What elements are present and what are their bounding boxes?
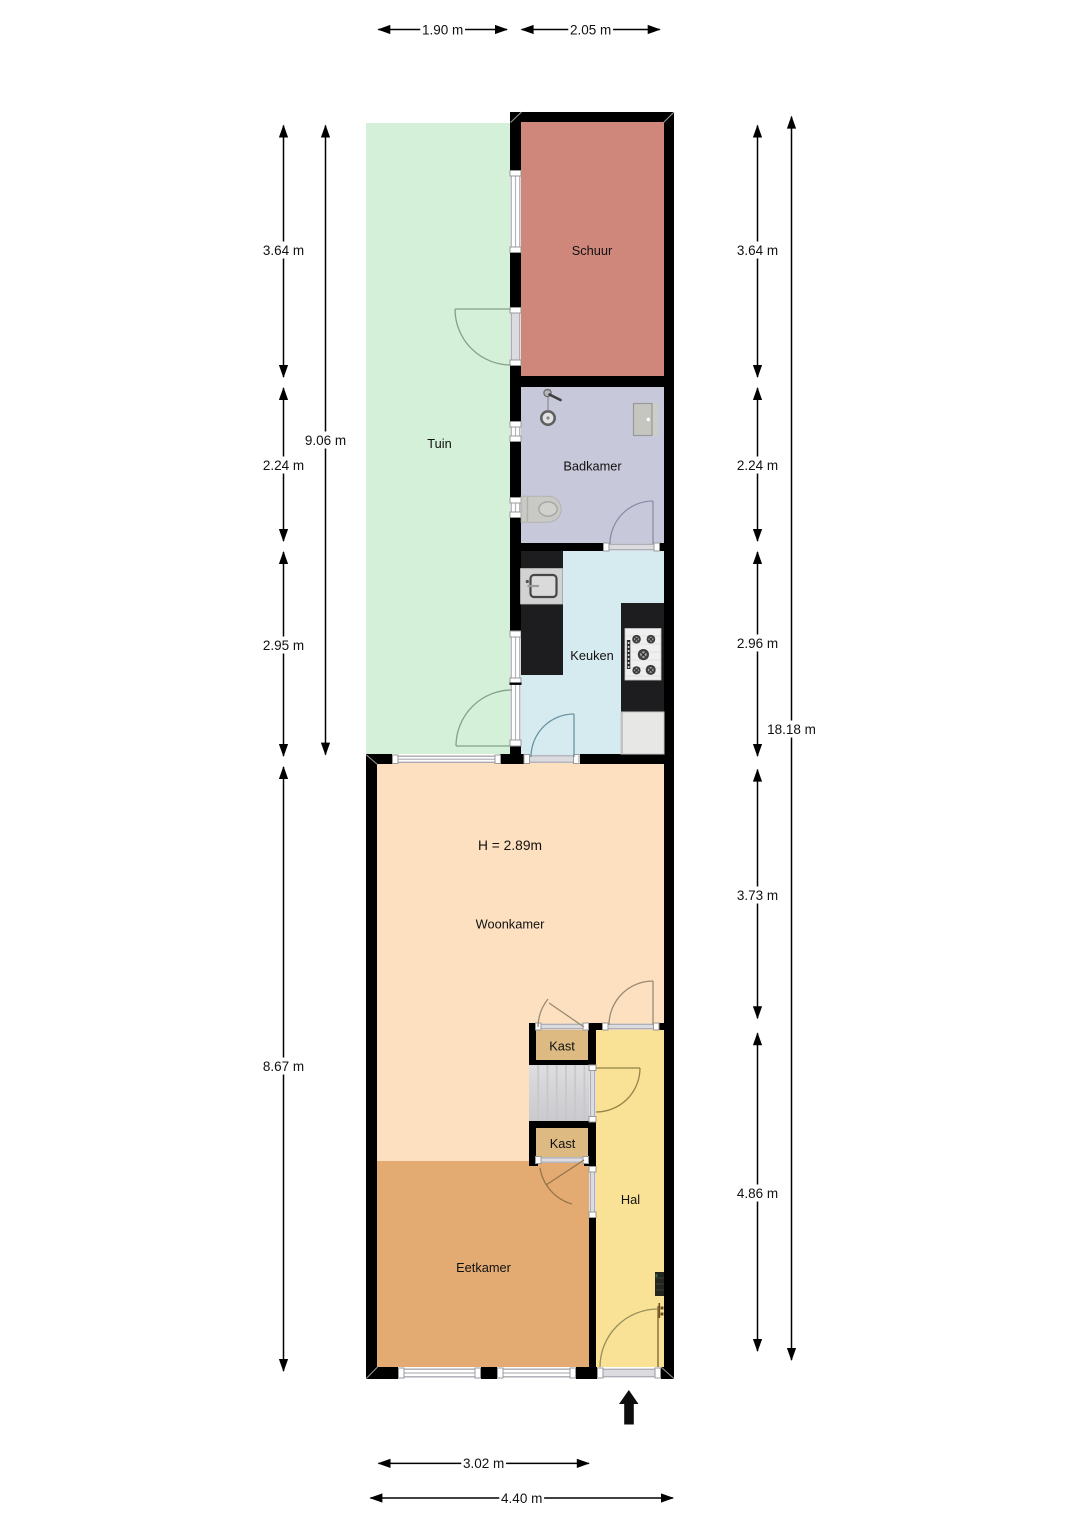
svg-text:2.95 m: 2.95 m xyxy=(263,638,304,653)
svg-text:9.06 m: 9.06 m xyxy=(305,433,346,448)
svg-text:Schuur: Schuur xyxy=(572,243,613,258)
svg-text:Kast: Kast xyxy=(549,1039,575,1054)
svg-text:3.64 m: 3.64 m xyxy=(737,243,778,258)
svg-text:4.86 m: 4.86 m xyxy=(737,1186,778,1201)
svg-text:4.40 m: 4.40 m xyxy=(501,1491,542,1506)
svg-text:Hal: Hal xyxy=(621,1192,640,1207)
svg-text:18.18 m: 18.18 m xyxy=(767,722,816,737)
svg-text:3.02 m: 3.02 m xyxy=(463,1456,504,1471)
svg-text:Keuken: Keuken xyxy=(570,648,613,663)
svg-text:2.96 m: 2.96 m xyxy=(737,636,778,651)
svg-text:Badkamer: Badkamer xyxy=(563,459,622,474)
svg-text:Kast: Kast xyxy=(550,1136,576,1151)
svg-text:H = 2.89m: H = 2.89m xyxy=(478,838,542,853)
svg-text:3.73 m: 3.73 m xyxy=(737,888,778,903)
svg-text:3.64 m: 3.64 m xyxy=(263,243,304,258)
svg-text:Woonkamer: Woonkamer xyxy=(476,917,545,932)
svg-text:1.90 m: 1.90 m xyxy=(422,22,463,37)
svg-text:2.24 m: 2.24 m xyxy=(737,458,778,473)
svg-text:2.05 m: 2.05 m xyxy=(570,22,611,37)
svg-text:2.24 m: 2.24 m xyxy=(263,458,304,473)
svg-text:Eetkamer: Eetkamer xyxy=(456,1260,512,1275)
svg-text:Tuin: Tuin xyxy=(427,436,451,451)
svg-text:8.67 m: 8.67 m xyxy=(263,1059,304,1074)
